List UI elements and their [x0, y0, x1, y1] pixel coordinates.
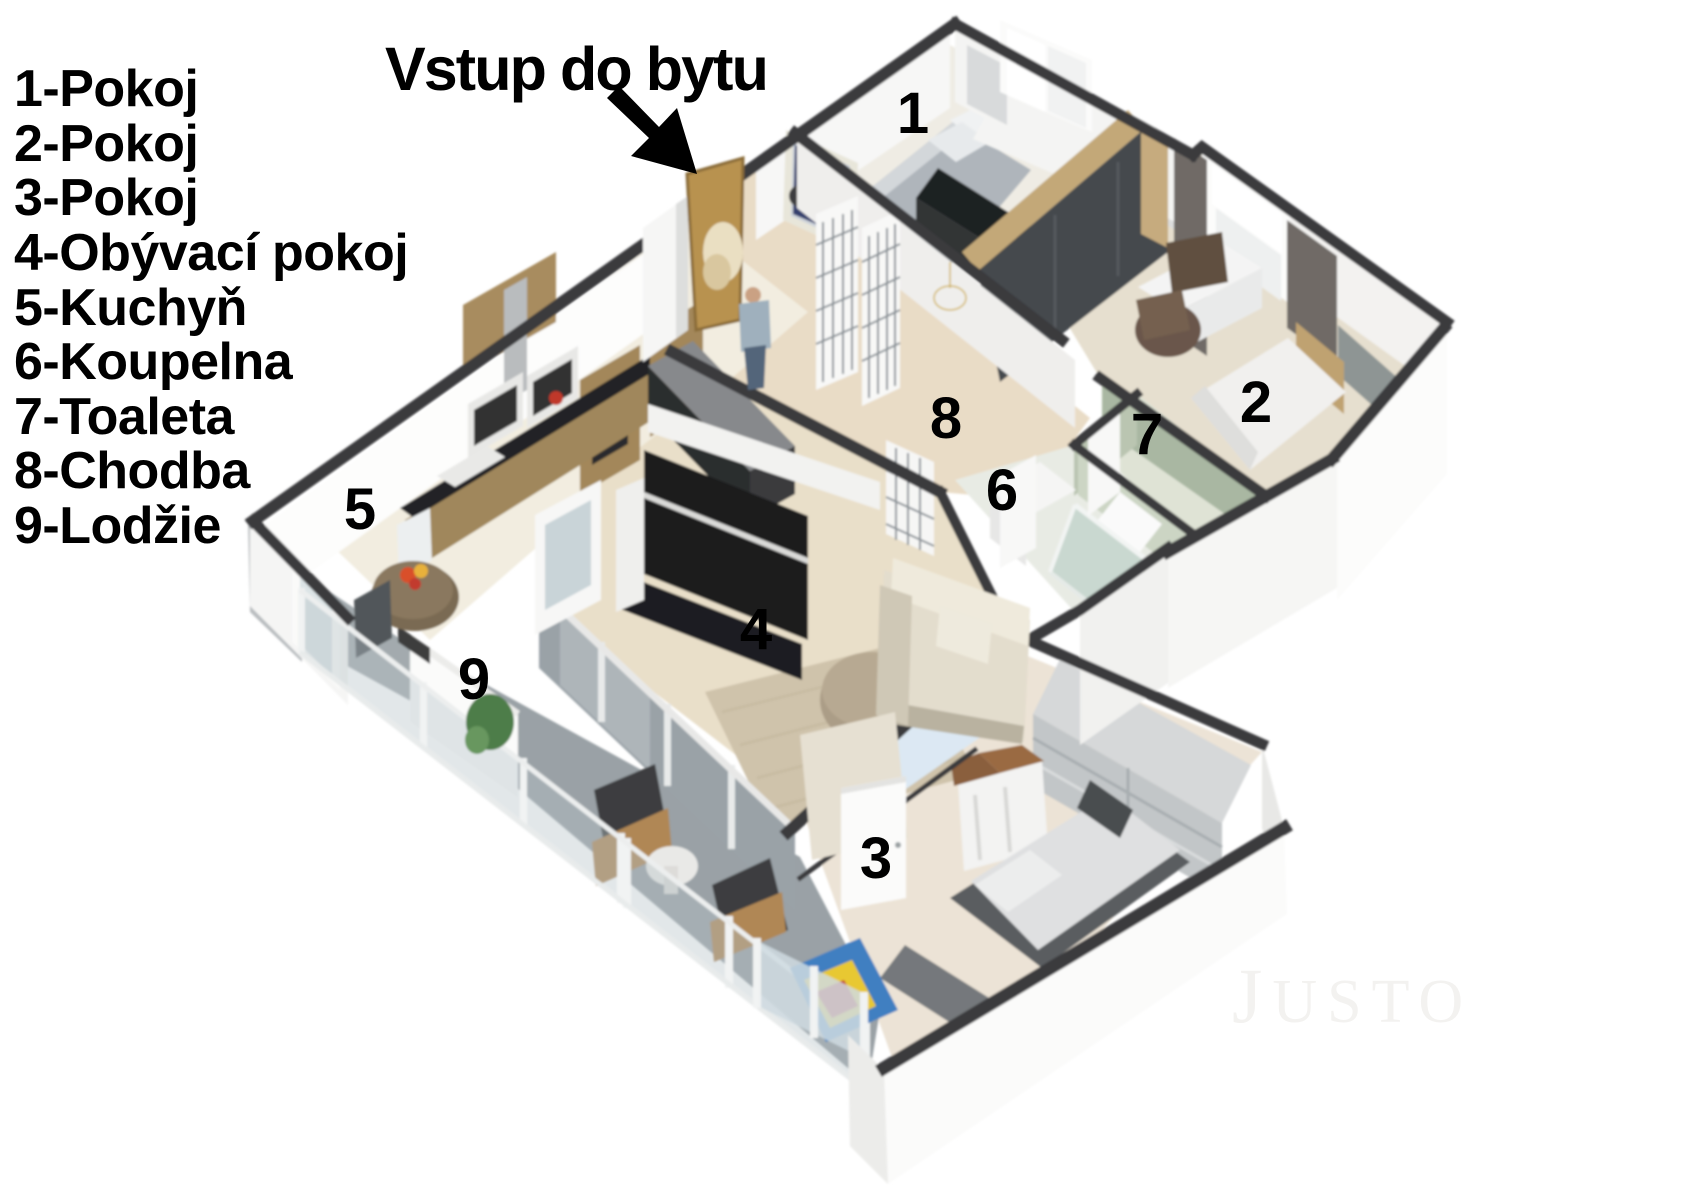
svg-text:6: 6 — [986, 458, 1018, 523]
svg-text:9: 9 — [458, 647, 490, 712]
svg-text:8: 8 — [930, 386, 962, 451]
svg-text:Vstup do bytu: Vstup do bytu — [385, 35, 767, 103]
svg-text:7-Toaleta: 7-Toaleta — [14, 388, 236, 446]
svg-text:2-Pokoj: 2-Pokoj — [14, 115, 198, 173]
svg-text:2: 2 — [1240, 370, 1272, 435]
svg-text:7: 7 — [1131, 402, 1163, 467]
svg-text:6-Koupelna: 6-Koupelna — [14, 333, 294, 391]
svg-text:9-Lodžie: 9-Lodžie — [14, 497, 221, 555]
svg-text:8-Chodba: 8-Chodba — [14, 442, 251, 500]
svg-text:1-Pokoj: 1-Pokoj — [14, 60, 198, 118]
svg-text:3: 3 — [860, 826, 892, 891]
svg-text:4-Obývací pokoj: 4-Obývací pokoj — [14, 224, 408, 282]
svg-text:3-Pokoj: 3-Pokoj — [14, 169, 198, 227]
svg-text:5: 5 — [344, 477, 376, 542]
svg-text:5-Kuchyň: 5-Kuchyň — [14, 279, 247, 337]
svg-text:4: 4 — [740, 597, 772, 662]
svg-text:1: 1 — [897, 81, 929, 146]
